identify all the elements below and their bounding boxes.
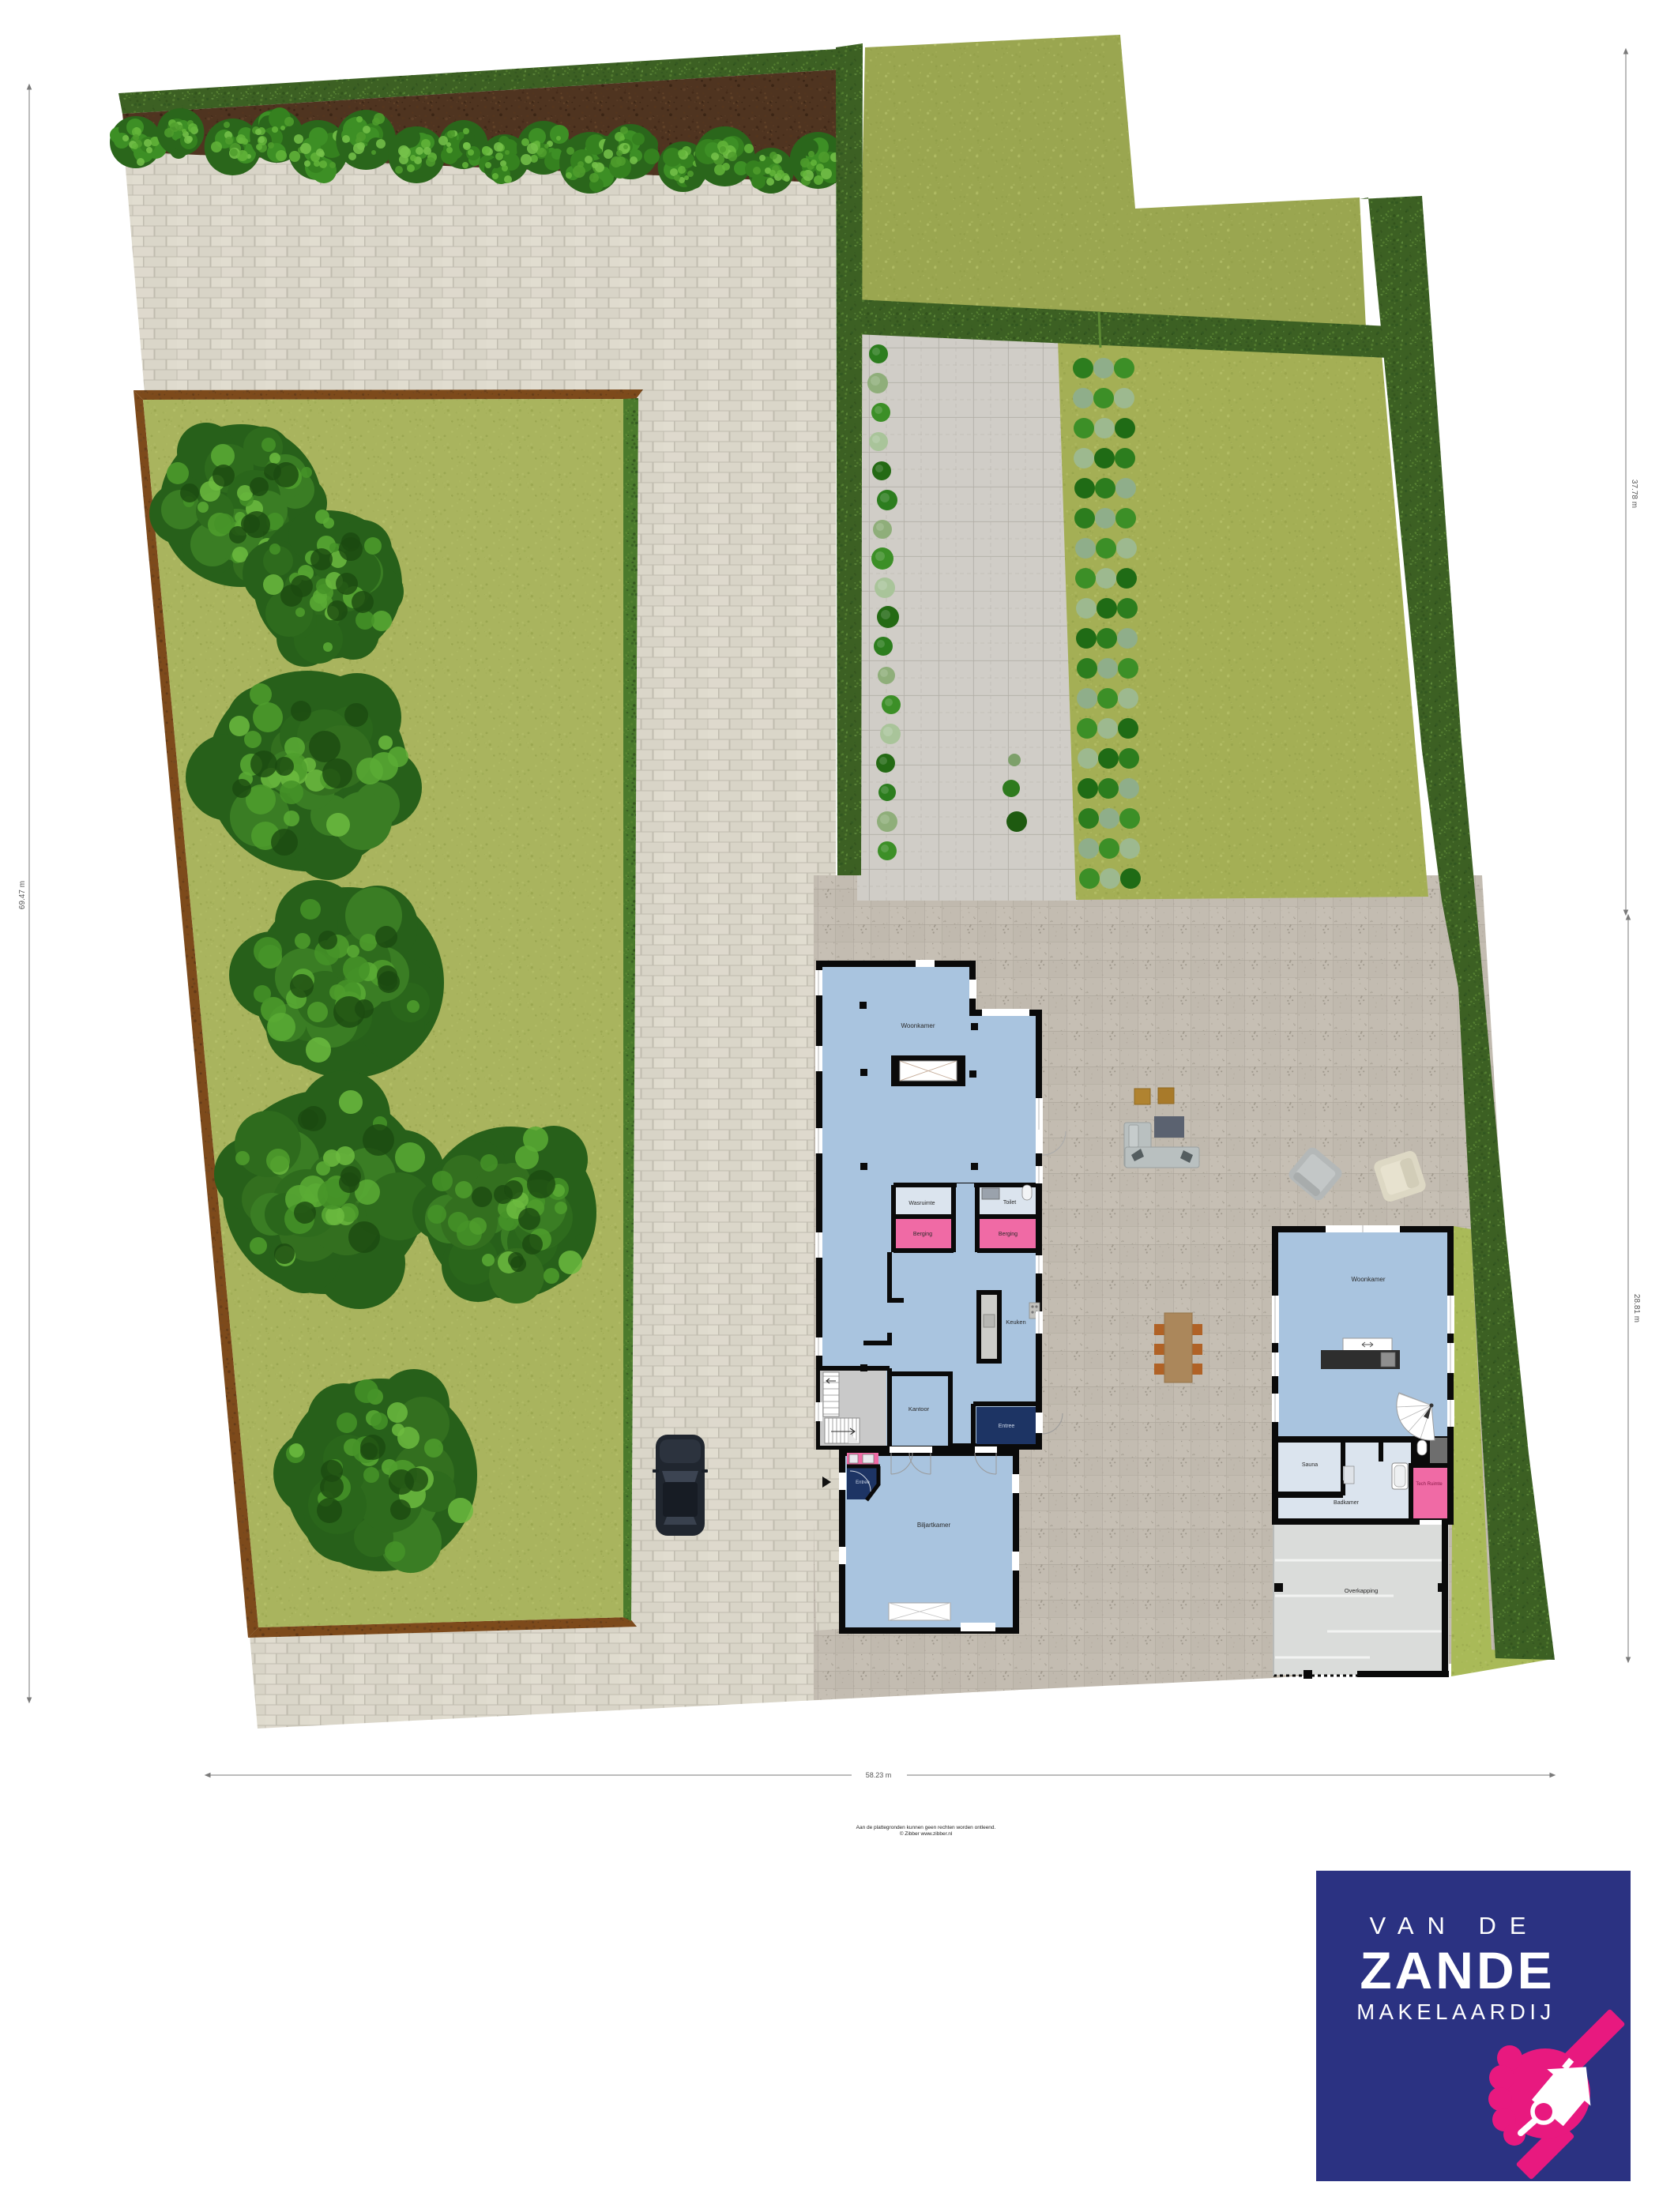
svg-text:Kantoor: Kantoor	[908, 1405, 930, 1413]
svg-text:Entree: Entree	[856, 1480, 870, 1485]
svg-text:Keuken: Keuken	[1006, 1319, 1025, 1326]
svg-text:Berging: Berging	[999, 1232, 1018, 1237]
svg-text:37.78 m: 37.78 m	[1630, 480, 1638, 508]
svg-text:Entree: Entree	[999, 1424, 1015, 1429]
svg-text:Sauna: Sauna	[1302, 1462, 1318, 1468]
svg-text:Overkapping: Overkapping	[1345, 1587, 1379, 1594]
svg-text:© Zibber www.zibber.nl: © Zibber www.zibber.nl	[900, 1830, 953, 1837]
svg-text:Aan de plattegronden kunnen ge: Aan de plattegronden kunnen geen rechten…	[856, 1825, 996, 1830]
svg-text:Woonkamer: Woonkamer	[1352, 1276, 1386, 1283]
svg-text:28.81 m: 28.81 m	[1632, 1294, 1641, 1322]
svg-text:Badkamer: Badkamer	[1334, 1500, 1360, 1506]
svg-text:Tech Ruimte: Tech Ruimte	[1416, 1482, 1443, 1487]
svg-text:ZANDE: ZANDE	[1360, 1941, 1555, 1999]
svg-text:VAN DE: VAN DE	[1369, 1912, 1539, 1939]
svg-text:Berging: Berging	[913, 1232, 932, 1237]
svg-text:Toilet: Toilet	[1003, 1200, 1016, 1206]
svg-text:MAKELAARDIJ: MAKELAARDIJ	[1356, 1999, 1556, 2024]
svg-text:Biljartkamer: Biljartkamer	[917, 1522, 951, 1529]
svg-text:58.23 m: 58.23 m	[866, 1771, 892, 1779]
svg-text:Wasruimte: Wasruimte	[908, 1201, 935, 1206]
svg-text:69.47 m: 69.47 m	[18, 881, 27, 909]
svg-text:Woonkamer: Woonkamer	[901, 1022, 935, 1029]
